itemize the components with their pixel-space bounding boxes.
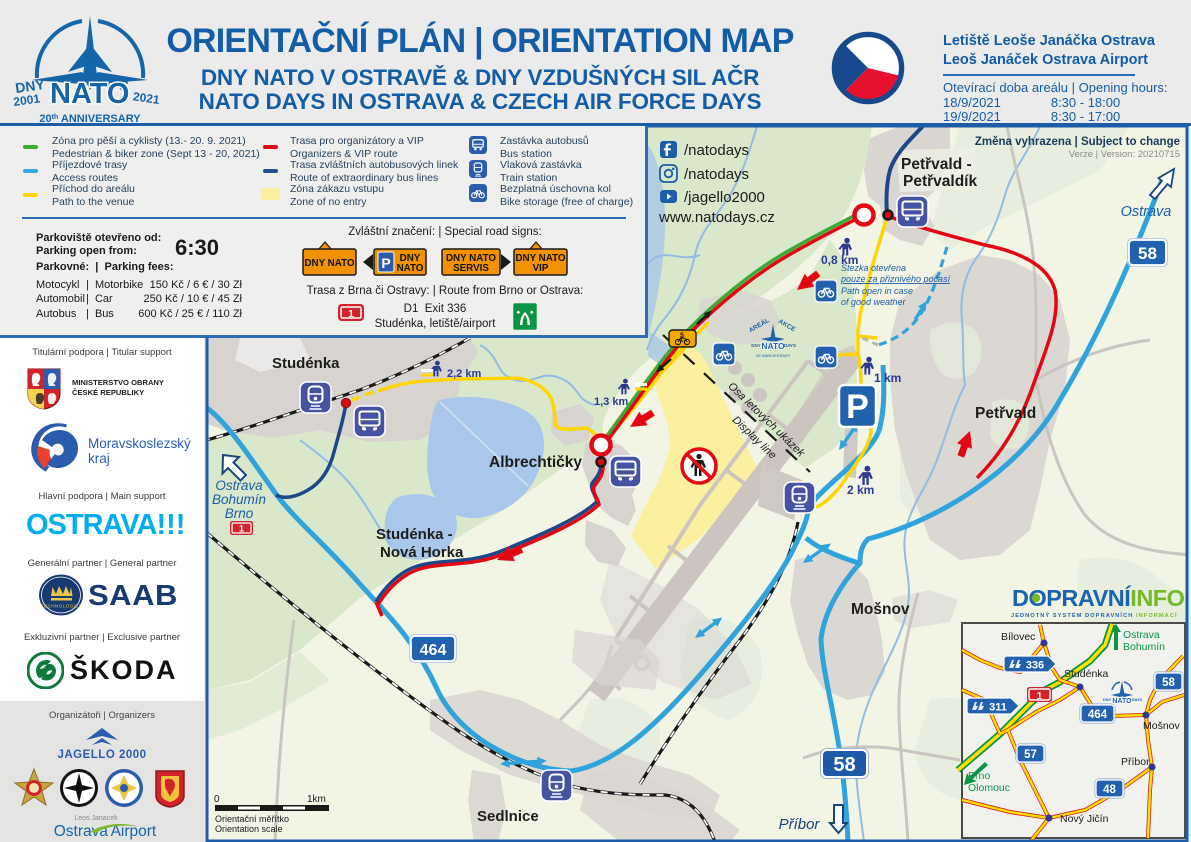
svg-text:Orientation scale: Orientation scale bbox=[215, 824, 283, 834]
svg-text:Ostrava: Ostrava bbox=[1121, 204, 1172, 220]
svg-text:Olomouc: Olomouc bbox=[968, 782, 1010, 794]
svg-text:Petřvaldík: Petřvaldík bbox=[903, 173, 977, 190]
svg-text:464: 464 bbox=[420, 642, 447, 659]
svg-text:Albrechtičky: Albrechtičky bbox=[489, 454, 582, 471]
svg-text:2,2 km: 2,2 km bbox=[447, 368, 481, 380]
svg-text:DNY NATO: DNY NATO bbox=[304, 258, 354, 269]
svg-text:VIP: VIP bbox=[533, 263, 549, 274]
svg-text:DNY: DNY bbox=[751, 343, 761, 348]
svg-text:P: P bbox=[846, 388, 869, 426]
svg-text:Brno: Brno bbox=[968, 770, 990, 782]
svg-text:Bílovec: Bílovec bbox=[1001, 631, 1035, 643]
svg-text:Ostrava Airport: Ostrava Airport bbox=[54, 823, 157, 840]
svg-text:P: P bbox=[381, 255, 390, 271]
svg-text:58: 58 bbox=[833, 754, 855, 776]
svg-text:DAYS: DAYS bbox=[784, 343, 796, 348]
svg-text:Příbor: Příbor bbox=[1121, 756, 1150, 768]
svg-text:Příbor: Příbor bbox=[779, 816, 821, 833]
svg-text:20th ANNIVERSARY: 20th ANNIVERSARY bbox=[39, 113, 141, 124]
svg-text:Studénka: Studénka bbox=[1064, 668, 1109, 680]
svg-text:DNY: DNY bbox=[1103, 698, 1111, 702]
svg-text:/natodays: /natodays bbox=[684, 142, 749, 159]
svg-text:Změna vyhrazena | Subject to c: Změna vyhrazena | Subject to change bbox=[975, 136, 1180, 148]
svg-text:/jagello2000: /jagello2000 bbox=[684, 189, 765, 206]
svg-text:JEDNOTNÝ SYSTÉM DOPRAVNÍCH INF: JEDNOTNÝ SYSTÉM DOPRAVNÍCH INFORMACÍ bbox=[1011, 611, 1178, 619]
svg-text:Ostrava: Ostrava bbox=[1123, 629, 1160, 641]
svg-text:58: 58 bbox=[1162, 677, 1175, 689]
svg-text:0: 0 bbox=[214, 794, 220, 805]
svg-text:NATO: NATO bbox=[397, 263, 424, 274]
svg-text:Sedlnice: Sedlnice bbox=[477, 808, 539, 825]
svg-text:Leos Janacek: Leos Janacek bbox=[74, 815, 118, 822]
svg-text:Mošnov: Mošnov bbox=[1143, 720, 1181, 732]
svg-text:Petřvald: Petřvald bbox=[975, 405, 1036, 422]
svg-text:Orientační měřítko: Orientační měřítko bbox=[215, 814, 289, 824]
svg-text:Brno: Brno bbox=[225, 506, 254, 521]
svg-text:www.natodays.cz: www.natodays.cz bbox=[658, 209, 775, 226]
svg-text:336: 336 bbox=[1026, 660, 1044, 672]
svg-text:Nová Horka: Nová Horka bbox=[380, 544, 464, 561]
svg-text:Bohumín: Bohumín bbox=[212, 492, 266, 507]
svg-text:of good weather: of good weather bbox=[841, 297, 907, 307]
svg-text:1: 1 bbox=[1037, 691, 1043, 702]
svg-text:1km: 1km bbox=[307, 794, 326, 805]
svg-text:Stezka otevřena: Stezka otevřena bbox=[841, 263, 906, 273]
svg-text:1 km: 1 km bbox=[874, 371, 901, 385]
svg-text:Studénka -: Studénka - bbox=[376, 526, 453, 543]
svg-text:58: 58 bbox=[1138, 244, 1157, 263]
svg-text:DAYS: DAYS bbox=[1132, 698, 1143, 702]
svg-text:TECHNOLOGIES: TECHNOLOGIES bbox=[41, 604, 82, 609]
svg-text:NATO: NATO bbox=[50, 78, 129, 110]
svg-text:48: 48 bbox=[1103, 784, 1116, 796]
svg-text:JAGELLO 2000: JAGELLO 2000 bbox=[57, 749, 146, 761]
svg-text:Ostrava: Ostrava bbox=[215, 478, 263, 493]
svg-text:20ᵗ ANNIVERSARY: 20ᵗ ANNIVERSARY bbox=[756, 353, 791, 358]
svg-text:2001: 2001 bbox=[12, 91, 41, 109]
svg-text:Path open in case: Path open in case bbox=[841, 286, 913, 296]
svg-text:2 km: 2 km bbox=[847, 483, 874, 497]
svg-text:Nový Jičín: Nový Jičín bbox=[1060, 813, 1109, 825]
svg-text:1: 1 bbox=[348, 308, 354, 320]
svg-text:/natodays: /natodays bbox=[684, 166, 749, 183]
svg-text:1: 1 bbox=[239, 524, 244, 534]
svg-text:SERVIS: SERVIS bbox=[453, 263, 489, 274]
svg-text:311: 311 bbox=[989, 702, 1007, 714]
svg-text:Verze | Version: 20210715: Verze | Version: 20210715 bbox=[1069, 149, 1180, 160]
svg-text:NATO: NATO bbox=[761, 341, 785, 351]
svg-text:1,3 km: 1,3 km bbox=[594, 396, 628, 408]
svg-text:Bohumín: Bohumín bbox=[1123, 641, 1165, 653]
svg-text:57: 57 bbox=[1024, 749, 1037, 761]
svg-text:pouze za přiznivého počasí: pouze za přiznivého počasí bbox=[840, 274, 952, 284]
svg-text:Studénka: Studénka bbox=[272, 355, 340, 372]
svg-text:464: 464 bbox=[1088, 709, 1108, 721]
svg-text:Petřvald -: Petřvald - bbox=[901, 156, 972, 173]
svg-text:NATO: NATO bbox=[1112, 698, 1132, 705]
svg-text:Mošnov: Mošnov bbox=[851, 601, 910, 618]
